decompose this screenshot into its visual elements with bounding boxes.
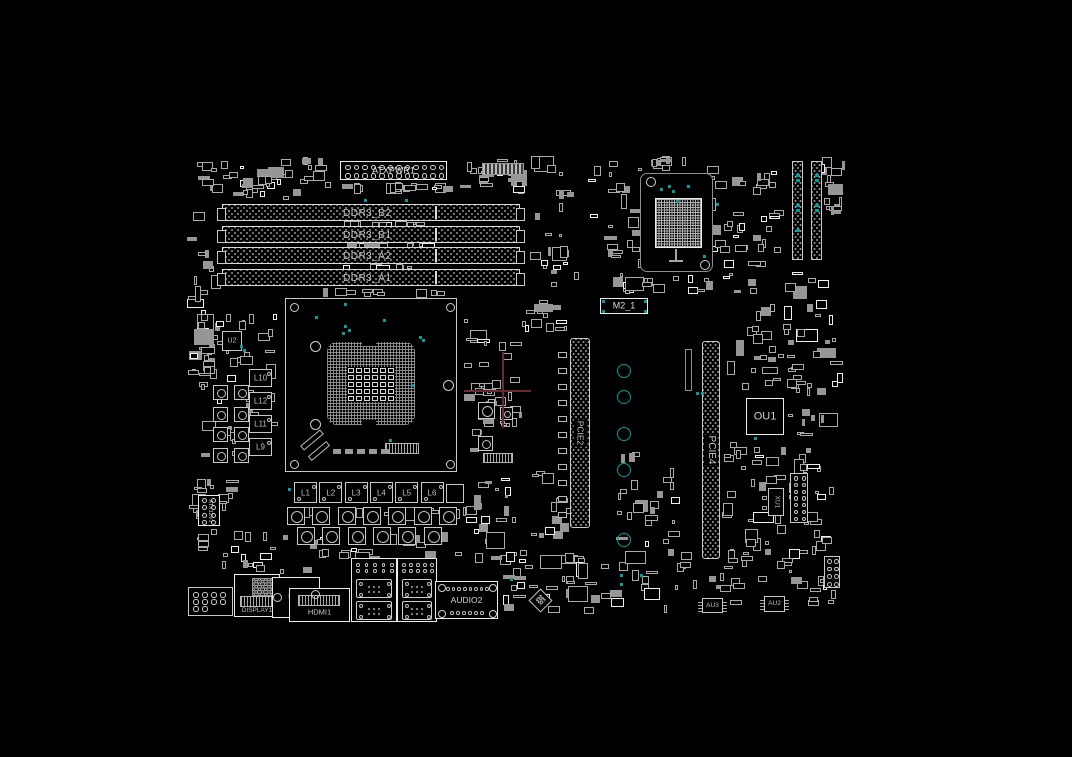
smd-component xyxy=(601,564,610,569)
teal-pad xyxy=(383,319,386,322)
teal-pad xyxy=(644,310,647,313)
smd-component xyxy=(817,388,826,396)
smd-component xyxy=(610,590,622,597)
dimm-latch[interactable] xyxy=(217,251,226,264)
smd-component xyxy=(765,541,769,546)
pin-hole xyxy=(646,177,656,187)
pin-hole xyxy=(423,563,427,567)
boardview-canvas[interactable]: ATXPWR1 DDR3_B2DDR3_B1DDR3_A2DDR3_A1 M2_… xyxy=(0,0,1072,757)
smd-component xyxy=(475,553,483,563)
smd-component xyxy=(207,479,211,487)
smd-component xyxy=(547,165,556,174)
teal-pad xyxy=(411,384,414,387)
teal-pad xyxy=(243,349,246,352)
pin-header[interactable] xyxy=(824,556,840,588)
pin-hole xyxy=(416,563,420,567)
pin-hole xyxy=(438,584,446,592)
smd-component xyxy=(497,159,509,162)
smd-component xyxy=(755,455,764,458)
smd-component xyxy=(746,539,756,547)
smd-component xyxy=(821,415,825,423)
pin-hole xyxy=(827,574,832,579)
smd-component xyxy=(514,576,526,580)
smd-component xyxy=(485,481,492,485)
pin-hole xyxy=(416,569,420,573)
smd-component xyxy=(728,550,735,559)
pin-hole xyxy=(377,531,389,543)
pin-hole xyxy=(362,165,367,170)
smd-component xyxy=(591,595,599,603)
pin-hole xyxy=(378,586,380,588)
pin-hole xyxy=(378,591,380,593)
smd-component xyxy=(807,383,812,388)
cpu-socket[interactable] xyxy=(285,298,457,472)
smd-component xyxy=(760,355,767,360)
dimm-latch[interactable] xyxy=(217,273,226,286)
pin-hole xyxy=(421,608,423,610)
pcie4-label: PCIE4 xyxy=(704,435,718,466)
capacitor xyxy=(388,368,394,373)
pin-hole xyxy=(428,531,440,543)
slot-pad xyxy=(558,480,567,486)
pin-hole xyxy=(411,591,413,593)
smd-component xyxy=(625,551,646,564)
smd-component xyxy=(188,370,199,375)
pin-hole xyxy=(359,604,363,608)
smd-component xyxy=(240,166,244,170)
smd-component xyxy=(416,184,429,190)
pin-hole xyxy=(485,587,489,591)
slot-pad xyxy=(558,432,567,438)
smd-component xyxy=(813,351,821,358)
capacitor xyxy=(388,389,394,394)
chipset-mark xyxy=(669,260,683,262)
pin-hole xyxy=(387,615,391,619)
smd-component xyxy=(796,388,800,393)
inductor[interactable]: L11 xyxy=(249,415,272,433)
vrm-capacitor xyxy=(439,507,457,525)
smd-component xyxy=(768,357,776,362)
smd-component xyxy=(807,388,811,396)
smd-component xyxy=(766,457,779,466)
dimm-latch[interactable] xyxy=(516,251,525,264)
capacitor xyxy=(348,382,354,387)
capacitor xyxy=(372,396,378,401)
capacitor xyxy=(356,396,362,401)
smd-component xyxy=(607,244,618,250)
smd-component xyxy=(486,532,505,549)
dimm-latch[interactable] xyxy=(217,230,226,243)
right-slot-a[interactable] xyxy=(792,161,803,260)
smd-component xyxy=(800,464,807,471)
pin-hole xyxy=(217,389,226,398)
smd-component xyxy=(769,182,777,188)
smd-component xyxy=(542,473,554,484)
smd-component xyxy=(508,392,512,401)
smd-component xyxy=(479,362,489,367)
smd-component xyxy=(638,168,642,171)
right-slot-b[interactable] xyxy=(811,161,822,260)
rear-io-power-connector[interactable] xyxy=(188,587,233,616)
pin-hole xyxy=(834,574,839,579)
dimm-slot[interactable]: DDR3_A1 xyxy=(222,269,520,286)
smd-component xyxy=(260,191,265,196)
usb-stack-a[interactable] xyxy=(351,558,397,622)
audio-connector[interactable]: AUDIO2 xyxy=(435,581,498,619)
dimm-latch[interactable] xyxy=(516,230,525,243)
pin-hole xyxy=(794,490,798,494)
smd-component xyxy=(778,354,785,358)
pcie-slot-4[interactable]: PCIE4 xyxy=(702,341,720,559)
slot-pad xyxy=(558,496,567,502)
smd-component xyxy=(830,361,843,365)
usb-port xyxy=(402,579,432,598)
smd-component xyxy=(283,196,289,200)
pin-hole xyxy=(396,173,401,178)
smd-component xyxy=(752,460,762,465)
pin-hole xyxy=(430,563,434,567)
pin-hole xyxy=(423,569,427,573)
smd-component xyxy=(240,356,253,366)
inductor[interactable]: L1 xyxy=(294,482,317,503)
smd-component xyxy=(578,563,589,579)
vrm-capacitor xyxy=(398,527,416,545)
capacitor xyxy=(364,375,370,380)
pin-hole xyxy=(193,606,198,611)
pins xyxy=(760,599,764,610)
pin-hole xyxy=(468,611,472,615)
smd-component xyxy=(743,552,749,556)
smd-component xyxy=(187,237,197,241)
smd-component xyxy=(510,377,520,383)
slot-pad xyxy=(558,368,567,374)
smd-component xyxy=(783,324,791,330)
pin-hole xyxy=(402,531,414,543)
pin-hole xyxy=(373,591,375,593)
inductor-label: L4 xyxy=(377,488,386,497)
smd-component xyxy=(531,156,540,169)
front-panel-header[interactable] xyxy=(790,473,808,523)
inductor[interactable]: L10 xyxy=(249,369,272,387)
smd-component xyxy=(553,265,560,271)
pins xyxy=(785,599,789,610)
pin-hole xyxy=(421,613,423,615)
capacitor xyxy=(380,396,386,401)
smd-component xyxy=(645,541,649,548)
pin-hole xyxy=(356,569,360,573)
pin-hole xyxy=(373,497,377,501)
smd-component xyxy=(467,162,471,171)
dimm-latch[interactable] xyxy=(217,208,226,221)
smd-component xyxy=(758,244,764,252)
smd-component xyxy=(315,165,327,171)
pin-hole xyxy=(439,485,443,489)
pin-hole xyxy=(416,608,418,610)
smd-component xyxy=(568,586,587,602)
pin-hole xyxy=(802,483,806,487)
smd-component xyxy=(720,585,731,592)
inductor[interactable]: L3 xyxy=(345,482,368,503)
pin-hole xyxy=(409,569,413,573)
smd-component xyxy=(800,433,813,436)
pin-hole xyxy=(802,503,806,507)
capacitor xyxy=(348,375,354,380)
smd-component xyxy=(730,600,743,605)
smd-component xyxy=(545,233,552,237)
pin-hole xyxy=(456,611,460,615)
pin-hole xyxy=(371,173,376,178)
pin-hole xyxy=(834,559,839,564)
inductor[interactable]: L6 xyxy=(421,482,444,503)
smd-component xyxy=(506,552,515,562)
pins xyxy=(698,601,702,612)
smd-component xyxy=(617,511,622,515)
pin-hole xyxy=(373,569,377,573)
smd-component xyxy=(816,300,827,309)
teal-pad xyxy=(342,332,345,335)
smd-component xyxy=(769,346,777,353)
inductor[interactable]: L5 xyxy=(395,482,418,503)
pin-hole xyxy=(794,483,798,487)
pin-hole xyxy=(504,411,511,418)
smd-component xyxy=(504,604,514,611)
pin-hole xyxy=(802,517,806,521)
crosshair-vertical xyxy=(502,352,504,428)
smd-component xyxy=(226,480,239,484)
capacitor xyxy=(356,375,362,380)
smd-component xyxy=(789,549,800,559)
inductor[interactable] xyxy=(446,484,464,503)
smd-component xyxy=(609,161,619,166)
atx-power-connector[interactable]: ATXPWR1 xyxy=(340,161,447,180)
chip-au3[interactable]: AU3 xyxy=(702,598,723,613)
smd-component xyxy=(739,181,746,186)
pin-hole xyxy=(794,496,798,500)
dimm-label: DDR3_B2 xyxy=(343,208,392,219)
pin-hole xyxy=(365,563,369,567)
smd-component xyxy=(664,605,667,614)
teal-pin xyxy=(796,229,800,232)
pin-hole xyxy=(373,608,375,610)
smd-component xyxy=(511,585,517,591)
pin-hole xyxy=(217,411,226,420)
display1-label: DISPLAY1 xyxy=(242,608,273,615)
smd-component xyxy=(612,250,623,254)
smd-component xyxy=(534,304,553,312)
teal-pad xyxy=(703,255,706,258)
smd-component xyxy=(588,179,597,182)
smd-component xyxy=(526,310,536,314)
pin-hole xyxy=(418,511,430,523)
pin-hole xyxy=(238,452,247,461)
smd-component xyxy=(551,502,557,512)
smd-component xyxy=(354,184,361,194)
pin-hole xyxy=(794,517,798,521)
smd-component xyxy=(234,531,243,540)
inductor-label: L12 xyxy=(254,397,267,406)
dimm-latch[interactable] xyxy=(516,273,525,286)
pin-hole xyxy=(202,592,207,597)
pin-hole xyxy=(422,165,427,170)
dimm-latch[interactable] xyxy=(516,208,525,221)
capacitor xyxy=(348,396,354,401)
vrm-capacitor xyxy=(424,527,442,545)
smd-component xyxy=(630,209,640,213)
teal-pad xyxy=(754,437,757,440)
pin-hole xyxy=(416,591,418,593)
smd-component xyxy=(223,553,228,557)
pin-hole xyxy=(387,604,391,608)
vrm-capacitor xyxy=(234,407,249,422)
smd-component xyxy=(273,314,278,320)
pin-hole xyxy=(310,341,321,352)
pin-hole xyxy=(794,503,798,507)
smd-component xyxy=(653,284,665,292)
smd-component xyxy=(770,216,780,219)
smd-component xyxy=(839,197,842,206)
smd-component xyxy=(322,549,329,558)
hdmi-connector[interactable]: HDMI1 xyxy=(289,588,350,622)
smd-component xyxy=(663,539,668,544)
smd-component xyxy=(548,247,551,257)
usb-stack-b[interactable] xyxy=(397,558,437,622)
smd-component xyxy=(828,600,834,604)
pin-hole xyxy=(427,582,431,586)
smd-component xyxy=(302,158,312,164)
smd-component xyxy=(594,166,601,176)
dimm-slot[interactable]: DDR3_A2 xyxy=(222,247,520,264)
atx12v-connector[interactable]: ATX12V1 xyxy=(198,495,220,526)
smd-component xyxy=(601,593,611,599)
pcie2-label: PCIE2 xyxy=(574,420,587,447)
smd-component xyxy=(758,576,767,582)
pin-hole xyxy=(273,593,282,602)
teal-pad xyxy=(422,339,425,342)
smd-component xyxy=(688,287,697,294)
smd-component xyxy=(525,565,534,569)
usb-port xyxy=(402,601,432,620)
pin-hole xyxy=(416,613,418,615)
smd-component xyxy=(268,329,273,337)
pin-hole xyxy=(827,582,832,587)
pin-hole xyxy=(834,582,839,587)
teal-pad xyxy=(620,574,623,577)
inductor-label: L3 xyxy=(352,488,361,497)
inductor-label: L9 xyxy=(256,443,265,452)
smd-component xyxy=(501,478,510,481)
smd-component xyxy=(221,161,228,169)
capacitor xyxy=(364,382,370,387)
vrm-capacitor xyxy=(234,448,249,463)
pin-hole xyxy=(311,590,320,599)
teal-pin xyxy=(815,209,819,212)
chip-xu1[interactable]: XU1 xyxy=(768,488,784,516)
teal-pad xyxy=(405,199,408,202)
pin-hole xyxy=(202,606,207,611)
smd-component xyxy=(753,334,763,344)
smd-component xyxy=(559,234,563,237)
smd-component xyxy=(198,252,206,256)
pin-hole xyxy=(220,599,225,604)
pin-hole xyxy=(421,586,423,588)
pin-hole xyxy=(373,586,375,588)
smd-component xyxy=(556,320,567,324)
smd-component xyxy=(766,226,772,233)
chip-u2[interactable]: U2 xyxy=(222,331,242,351)
dimm-key xyxy=(435,228,437,241)
smd-component xyxy=(474,529,479,534)
inductor[interactable]: L2 xyxy=(319,482,342,503)
inductor[interactable]: L12 xyxy=(249,392,272,410)
smd-component xyxy=(546,323,554,333)
slot-pad xyxy=(558,512,567,518)
teal-pad xyxy=(672,190,675,193)
smd-component xyxy=(632,570,639,581)
smd-component xyxy=(832,338,836,342)
inductor[interactable]: L9 xyxy=(249,438,272,456)
pcie-slot-2[interactable]: PCIE2 xyxy=(570,338,590,528)
smd-component xyxy=(293,189,301,196)
smd-component xyxy=(277,179,281,185)
pin-hole xyxy=(794,510,798,514)
m2-label: M2_1 xyxy=(613,302,636,311)
dimm-slot[interactable]: DDR3_B1 xyxy=(222,226,520,243)
capacitor xyxy=(380,375,386,380)
pin-hole xyxy=(388,173,393,178)
teal-pin xyxy=(815,174,819,177)
pin-hole xyxy=(363,485,367,489)
smd-component xyxy=(202,179,214,186)
pin-hole xyxy=(700,260,710,270)
mounting-hole xyxy=(617,390,631,404)
m2-connector[interactable]: M2_1 xyxy=(600,298,648,314)
dimm-slot[interactable]: DDR3_B2 xyxy=(222,204,520,221)
pin-hole xyxy=(439,165,444,170)
pin-hole xyxy=(193,592,198,597)
vrm-capacitor xyxy=(322,527,340,545)
smd-component xyxy=(211,529,217,536)
slot-pad xyxy=(558,416,567,422)
smd-component xyxy=(339,552,349,560)
mounting-hole xyxy=(617,364,631,378)
inductor[interactable]: L4 xyxy=(370,482,393,503)
smd-component xyxy=(201,314,208,321)
pin-hole xyxy=(368,586,370,588)
smd-component xyxy=(520,550,528,556)
chip-ou1[interactable]: OU1 xyxy=(746,398,784,435)
smd-component xyxy=(231,546,239,552)
smd-component xyxy=(671,497,680,505)
smd-component xyxy=(197,488,207,493)
capacitor xyxy=(380,389,386,394)
smd-component xyxy=(652,159,657,167)
pin-hole xyxy=(267,441,271,445)
pin-hole xyxy=(267,395,271,399)
vrm-capacitor xyxy=(287,507,305,525)
smd-component xyxy=(546,586,559,591)
chip-au2[interactable]: AU2 xyxy=(764,596,785,612)
smd-component xyxy=(513,186,525,194)
smd-component xyxy=(777,525,785,534)
smd-component xyxy=(798,550,808,554)
smd-component xyxy=(464,363,472,369)
vrm-capacitor xyxy=(388,507,406,525)
smd-component xyxy=(650,507,655,514)
smd-component xyxy=(620,489,628,494)
capacitor xyxy=(348,368,354,373)
vrm-capacitor xyxy=(478,402,495,419)
smd-component xyxy=(788,414,793,417)
